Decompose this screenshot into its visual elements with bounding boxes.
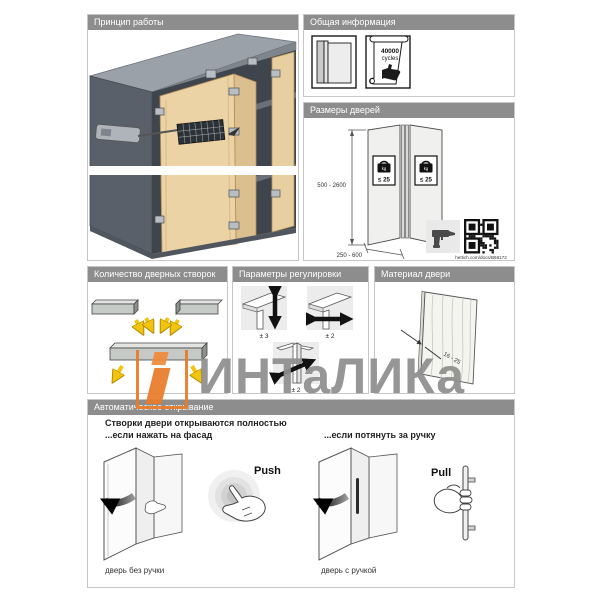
panel-auto-open: Автоматическое открывание Створки двери … xyxy=(87,399,515,588)
door-handle-icon xyxy=(356,478,359,514)
brand-logo-icon xyxy=(136,350,188,409)
small-door-leaf xyxy=(176,300,222,314)
pull-illustration: Pull xyxy=(311,444,516,564)
door-sizes-illustration: 500 - 2600 250 - 600 kg ≤ 25 kg xyxy=(304,118,514,260)
panel-title: Параметры регулировки xyxy=(233,267,368,282)
fold-arrows xyxy=(136,318,178,332)
cycles-scroll-icon: 40000 cycles xyxy=(366,36,410,88)
caption-no-handle: дверь без ручки xyxy=(105,566,164,575)
auto-open-line2: ...если нажать на фасад xyxy=(105,430,212,440)
auto-open-line1: Створки двери открываются полностью xyxy=(105,418,287,428)
adjust-vertical-diagram xyxy=(241,286,287,330)
caption-with-handle: дверь с ручкой xyxy=(321,566,376,575)
qr-code xyxy=(464,219,499,254)
width-dimension-line xyxy=(364,243,404,259)
height-dimension-line xyxy=(348,130,366,245)
doc-link: hettich.com/docs/B68172 xyxy=(455,255,507,260)
cycles-number: 40000 xyxy=(381,48,399,55)
thickness-arrow-icon xyxy=(401,330,421,344)
panel-door-sizes: Размеры дверей 500 - 2600 250 - 600 xyxy=(303,102,515,261)
auto-open-line3: ...если потянуть за ручку xyxy=(324,430,436,440)
adjust-vertical-value: ± 3 xyxy=(260,333,269,340)
panel-title: Общая информация xyxy=(304,15,514,30)
panel-title: Количество дверных створок xyxy=(88,267,227,282)
watermark-text: ИНТаЛИКа xyxy=(198,348,465,404)
weight-limit-label: ≤ 25 xyxy=(378,177,391,184)
panel-title: Материал двери xyxy=(375,267,514,282)
general-info-icons: 40000 cycles xyxy=(304,30,514,96)
weight-unit-label: kg xyxy=(382,166,387,171)
weight-unit-label: kg xyxy=(424,166,429,171)
small-door-leaf xyxy=(92,300,138,314)
weight-limit-label: ≤ 25 xyxy=(420,177,433,184)
panel-title: Принцип работы xyxy=(88,15,298,30)
watermark: ИНТаЛИКа xyxy=(136,350,465,409)
adjust-horizontal-diagram xyxy=(307,286,353,330)
catalog-book-icon xyxy=(312,36,356,88)
push-label: Push xyxy=(254,465,281,477)
height-range-label: 500 - 2600 xyxy=(317,183,346,189)
cycles-word: cycles xyxy=(382,56,399,62)
push-illustration: Push xyxy=(96,444,301,564)
cabinet-illustration xyxy=(88,30,298,260)
panel-principle: Принцип работы xyxy=(87,14,299,261)
weight-badge: kg ≤ 25 xyxy=(373,156,395,185)
adjust-horizontal-value: ± 2 xyxy=(326,333,335,340)
panel-title: Размеры дверей xyxy=(304,103,514,118)
catalog-page: Принцип работы xyxy=(0,0,600,600)
weight-badge: kg ≤ 25 xyxy=(415,156,437,185)
panel-general-info: Общая информация 40000 cycles xyxy=(303,14,515,97)
pull-label: Pull xyxy=(431,467,451,479)
width-range-label: 250 - 600 xyxy=(337,253,363,259)
